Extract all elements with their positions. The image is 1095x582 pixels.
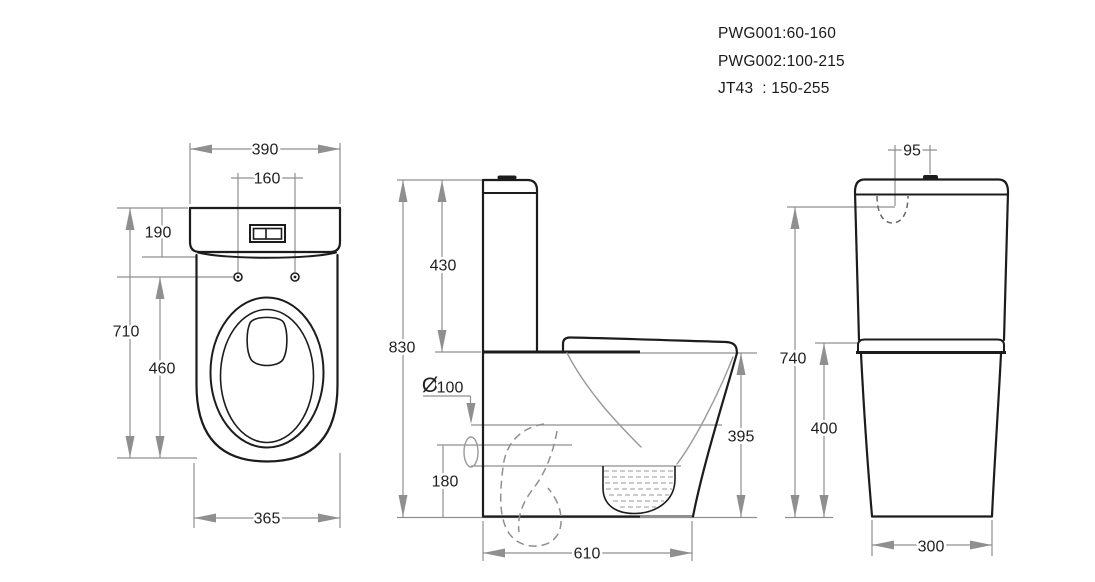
bowl-back-curve <box>567 353 641 447</box>
dim-back-shelf-height: 400 <box>811 421 838 438</box>
back-cistern <box>855 180 1008 341</box>
water-hatching <box>604 471 674 507</box>
water-trap-outline <box>603 466 675 514</box>
back-view: 95 740 400 300 <box>780 143 1008 557</box>
side-toilet-outline <box>464 176 737 547</box>
dim-front-tank-height: 190 <box>145 225 172 242</box>
dim-back-base-width: 300 <box>918 539 945 556</box>
outlet-leader-arrow <box>467 403 476 424</box>
dim-side-depth: 610 <box>574 546 601 563</box>
dim-front-rim-height: 460 <box>149 361 176 378</box>
waste-outlet-pipe <box>464 437 478 467</box>
dim-outlet-diameter-value: 100 <box>437 380 464 397</box>
dim-front-top-width: 390 <box>252 142 279 159</box>
side-flush-button <box>498 176 517 180</box>
back-dimension-lines <box>791 145 993 550</box>
bowl-water-spot <box>247 317 287 365</box>
dim-front-hole-spacing: 160 <box>254 171 281 188</box>
bowl-front-curve <box>677 357 733 464</box>
front-toilet-outline <box>190 208 340 462</box>
dim-side-tank-height: 430 <box>430 258 457 275</box>
dim-front-base-width: 365 <box>254 511 281 528</box>
seat-inner-ring <box>221 310 314 443</box>
dim-side-overall-height: 830 <box>389 340 416 357</box>
dual-flush-button <box>250 225 285 242</box>
seat-outer-ring <box>211 298 324 448</box>
toilet-dimension-drawing: 390 160 190 710 460 365 <box>0 0 1095 582</box>
back-flush-button <box>923 175 938 180</box>
front-view: 390 160 190 710 460 365 <box>113 142 340 529</box>
dim-back-inlet-offset: 95 <box>903 143 921 160</box>
dim-side-rim-height: 395 <box>728 429 755 446</box>
trapway-hidden-outline <box>501 424 561 546</box>
side-cistern <box>483 180 537 352</box>
seat-hinge-holes <box>234 273 299 281</box>
technical-drawing-page: PWG001:60-160 PWG002:100-215 JT43 : 150-… <box>0 0 1095 582</box>
back-shelf <box>858 340 1004 352</box>
front-extension-lines <box>117 143 340 528</box>
front-dimension-lines <box>126 145 341 523</box>
side-view: 430 830 Ø 100 180 395 610 <box>389 176 757 563</box>
back-toilet-outline <box>855 175 1008 517</box>
dim-back-inlet-height: 740 <box>780 351 807 368</box>
dim-outlet-center-height: 180 <box>432 474 459 491</box>
back-extension-lines <box>785 155 992 556</box>
dim-front-overall-height: 710 <box>113 324 140 341</box>
side-dimension-lines <box>399 180 746 558</box>
inlet-hole-hidden <box>877 196 908 223</box>
